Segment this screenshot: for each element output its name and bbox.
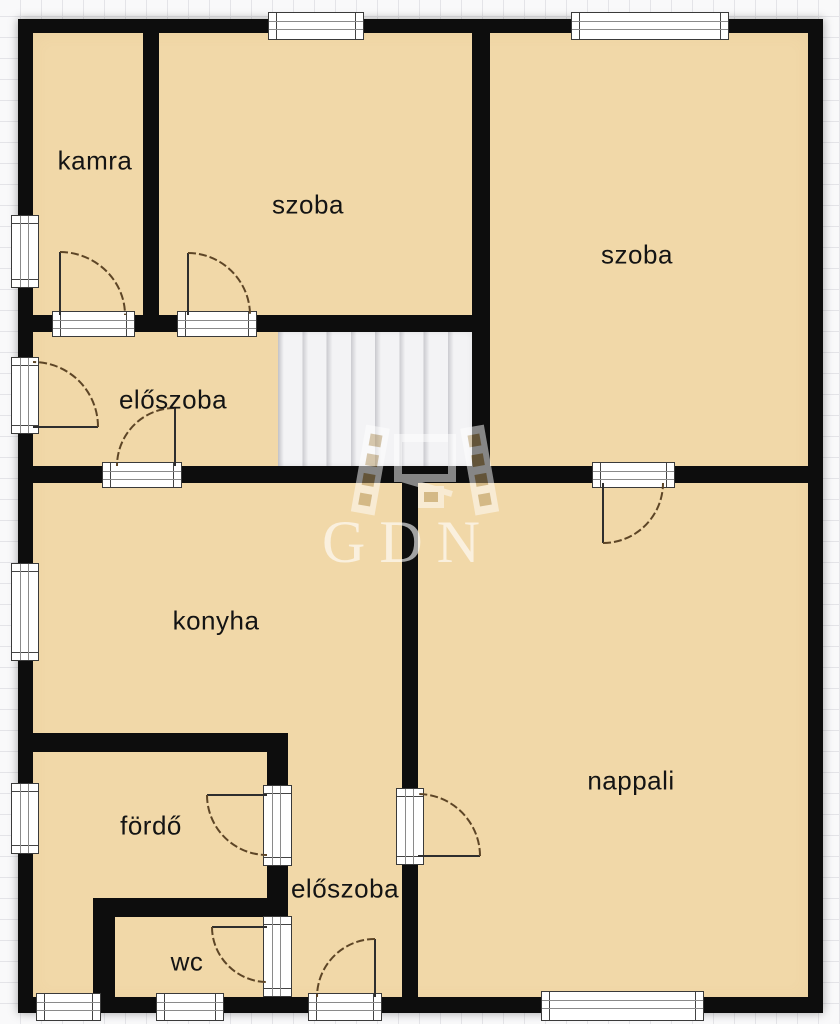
wall-outer-left: [18, 19, 33, 1013]
window-szoba2-top: [571, 12, 729, 40]
door-sill-konyha: [102, 462, 182, 488]
room-label-eloszoba-lower: előszoba: [291, 874, 399, 905]
door-sill-kamra: [52, 311, 135, 337]
room-label-szoba-small: szoba: [272, 190, 344, 221]
floor-plan-canvas: kamra szoba szoba előszoba konyha nappal…: [0, 0, 840, 1024]
window-nappali-bottom: [541, 991, 704, 1021]
window-szoba-top: [268, 12, 364, 40]
door-sill-eloszoba-exterior: [11, 357, 39, 434]
room-label-szoba-large: szoba: [601, 240, 673, 271]
door-sill-szoba2: [592, 462, 675, 488]
wall-konyha-nappali: [402, 483, 418, 997]
door-sill-nappali: [396, 788, 424, 865]
wall-szoba-szoba: [472, 33, 490, 466]
window-kamra-left: [11, 215, 39, 288]
room-label-eloszoba-upper: előszoba: [119, 385, 227, 416]
window-konyha-left: [11, 563, 39, 661]
window-fordo-left: [11, 783, 39, 854]
wall-wc-top: [93, 898, 288, 917]
door-sill-fordo: [263, 785, 292, 866]
wall-fordo-top: [18, 733, 288, 752]
door-sill-entrance: [308, 993, 382, 1021]
window-fordo-bottom: [36, 993, 101, 1021]
door-sill-wc: [263, 916, 292, 997]
room-label-kamra: kamra: [58, 146, 133, 177]
room-label-fordo: fördő: [120, 811, 182, 842]
door-sill-szoba: [177, 311, 257, 337]
wall-outer-right: [808, 19, 823, 1013]
staircase: [278, 332, 472, 466]
wall-wc-left: [93, 917, 115, 997]
room-label-nappali: nappali: [587, 766, 674, 797]
room-label-konyha: konyha: [173, 606, 260, 637]
room-label-wc: wc: [171, 947, 204, 978]
wall-kamra-szoba: [143, 33, 159, 315]
window-wc-bottom: [156, 993, 224, 1021]
